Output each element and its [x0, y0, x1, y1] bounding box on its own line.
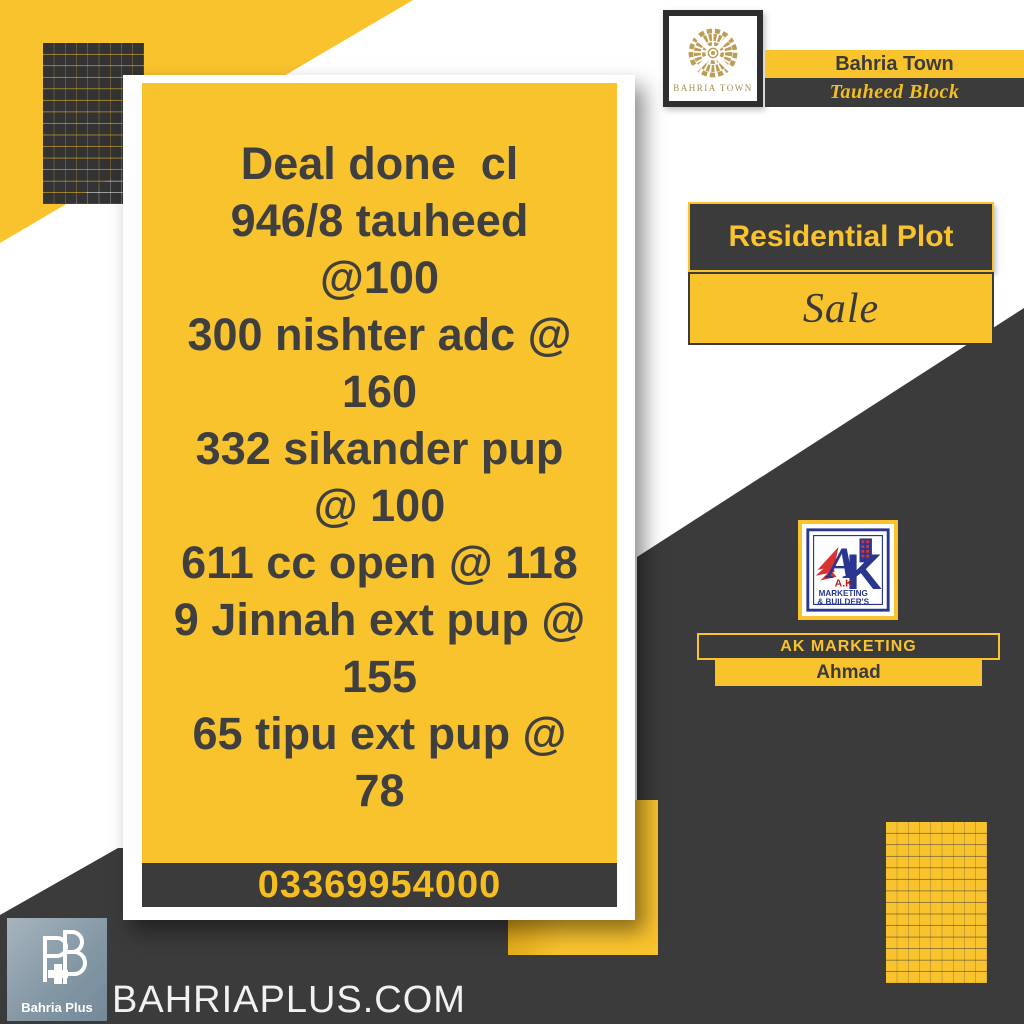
- deal-line: @100: [320, 249, 439, 306]
- ak-builders-logo-icon: A K A.K MARKETING & BUILDER'S: [804, 526, 892, 614]
- ak-logo-line1: MARKETING: [819, 589, 868, 598]
- deal-line: 611 cc open @ 118: [181, 534, 578, 591]
- bahria-town-medallion-icon: [684, 24, 742, 82]
- deal-line: 78: [354, 762, 404, 819]
- sale-label: Sale: [803, 285, 879, 333]
- dots-pattern-bottom-right: [886, 822, 987, 983]
- bahria-town-title-strip: Bahria Town: [765, 50, 1024, 78]
- sale-badge: Sale: [688, 272, 994, 345]
- deal-line: 65 tipu ext pup @: [193, 705, 567, 762]
- residential-plot-label: Residential Plot: [728, 220, 953, 254]
- agent-name-label: Ahmad: [816, 662, 880, 684]
- deal-line: Deal done cl: [241, 135, 519, 192]
- deal-line: 946/8 tauheed: [231, 192, 529, 249]
- ak-logo-name: A.K: [835, 577, 854, 589]
- bahria-town-logo-caption: BAHRIA TOWN: [673, 83, 752, 93]
- deal-card: Deal done cl 946/8 tauheed @100 300 nish…: [123, 75, 635, 920]
- tauheed-block-label: Tauheed Block: [830, 81, 960, 104]
- deal-line: 155: [342, 648, 417, 705]
- ak-logo-line2: & BUILDER'S: [817, 597, 869, 606]
- phone-number: 03369954000: [258, 864, 501, 907]
- tauheed-block-strip: Tauheed Block: [765, 78, 1024, 107]
- residential-plot-badge: Residential Plot: [688, 202, 994, 272]
- agent-name-bar: Ahmad: [715, 660, 982, 686]
- phone-bar: 03369954000: [142, 863, 617, 907]
- bahria-town-logo-box: BAHRIA TOWN: [663, 10, 763, 107]
- poster-canvas: Deal done cl 946/8 tauheed @100 300 nish…: [0, 0, 1024, 1024]
- bahria-plus-logo: Bahria Plus: [7, 918, 107, 1021]
- deal-line: 9 Jinnah ext pup @: [174, 591, 585, 648]
- ak-marketing-label: AK MARKETING: [780, 638, 916, 656]
- deal-card-body: Deal done cl 946/8 tauheed @100 300 nish…: [142, 83, 617, 863]
- ak-logo-box: A K A.K MARKETING & BUILDER'S: [798, 520, 898, 620]
- bahria-town-title: Bahria Town: [835, 53, 954, 76]
- deal-line: @ 100: [314, 477, 445, 534]
- bahria-plus-monogram-icon: [25, 922, 89, 996]
- bahria-plus-label: Bahria Plus: [21, 1000, 93, 1015]
- deal-line: 160: [342, 363, 417, 420]
- ak-marketing-bar: AK MARKETING: [697, 633, 1000, 660]
- deal-line: 300 nishter adc @: [187, 306, 571, 363]
- deal-line: 332 sikander pup: [196, 420, 564, 477]
- website-url: BAHRIAPLUS.COM: [112, 979, 466, 1022]
